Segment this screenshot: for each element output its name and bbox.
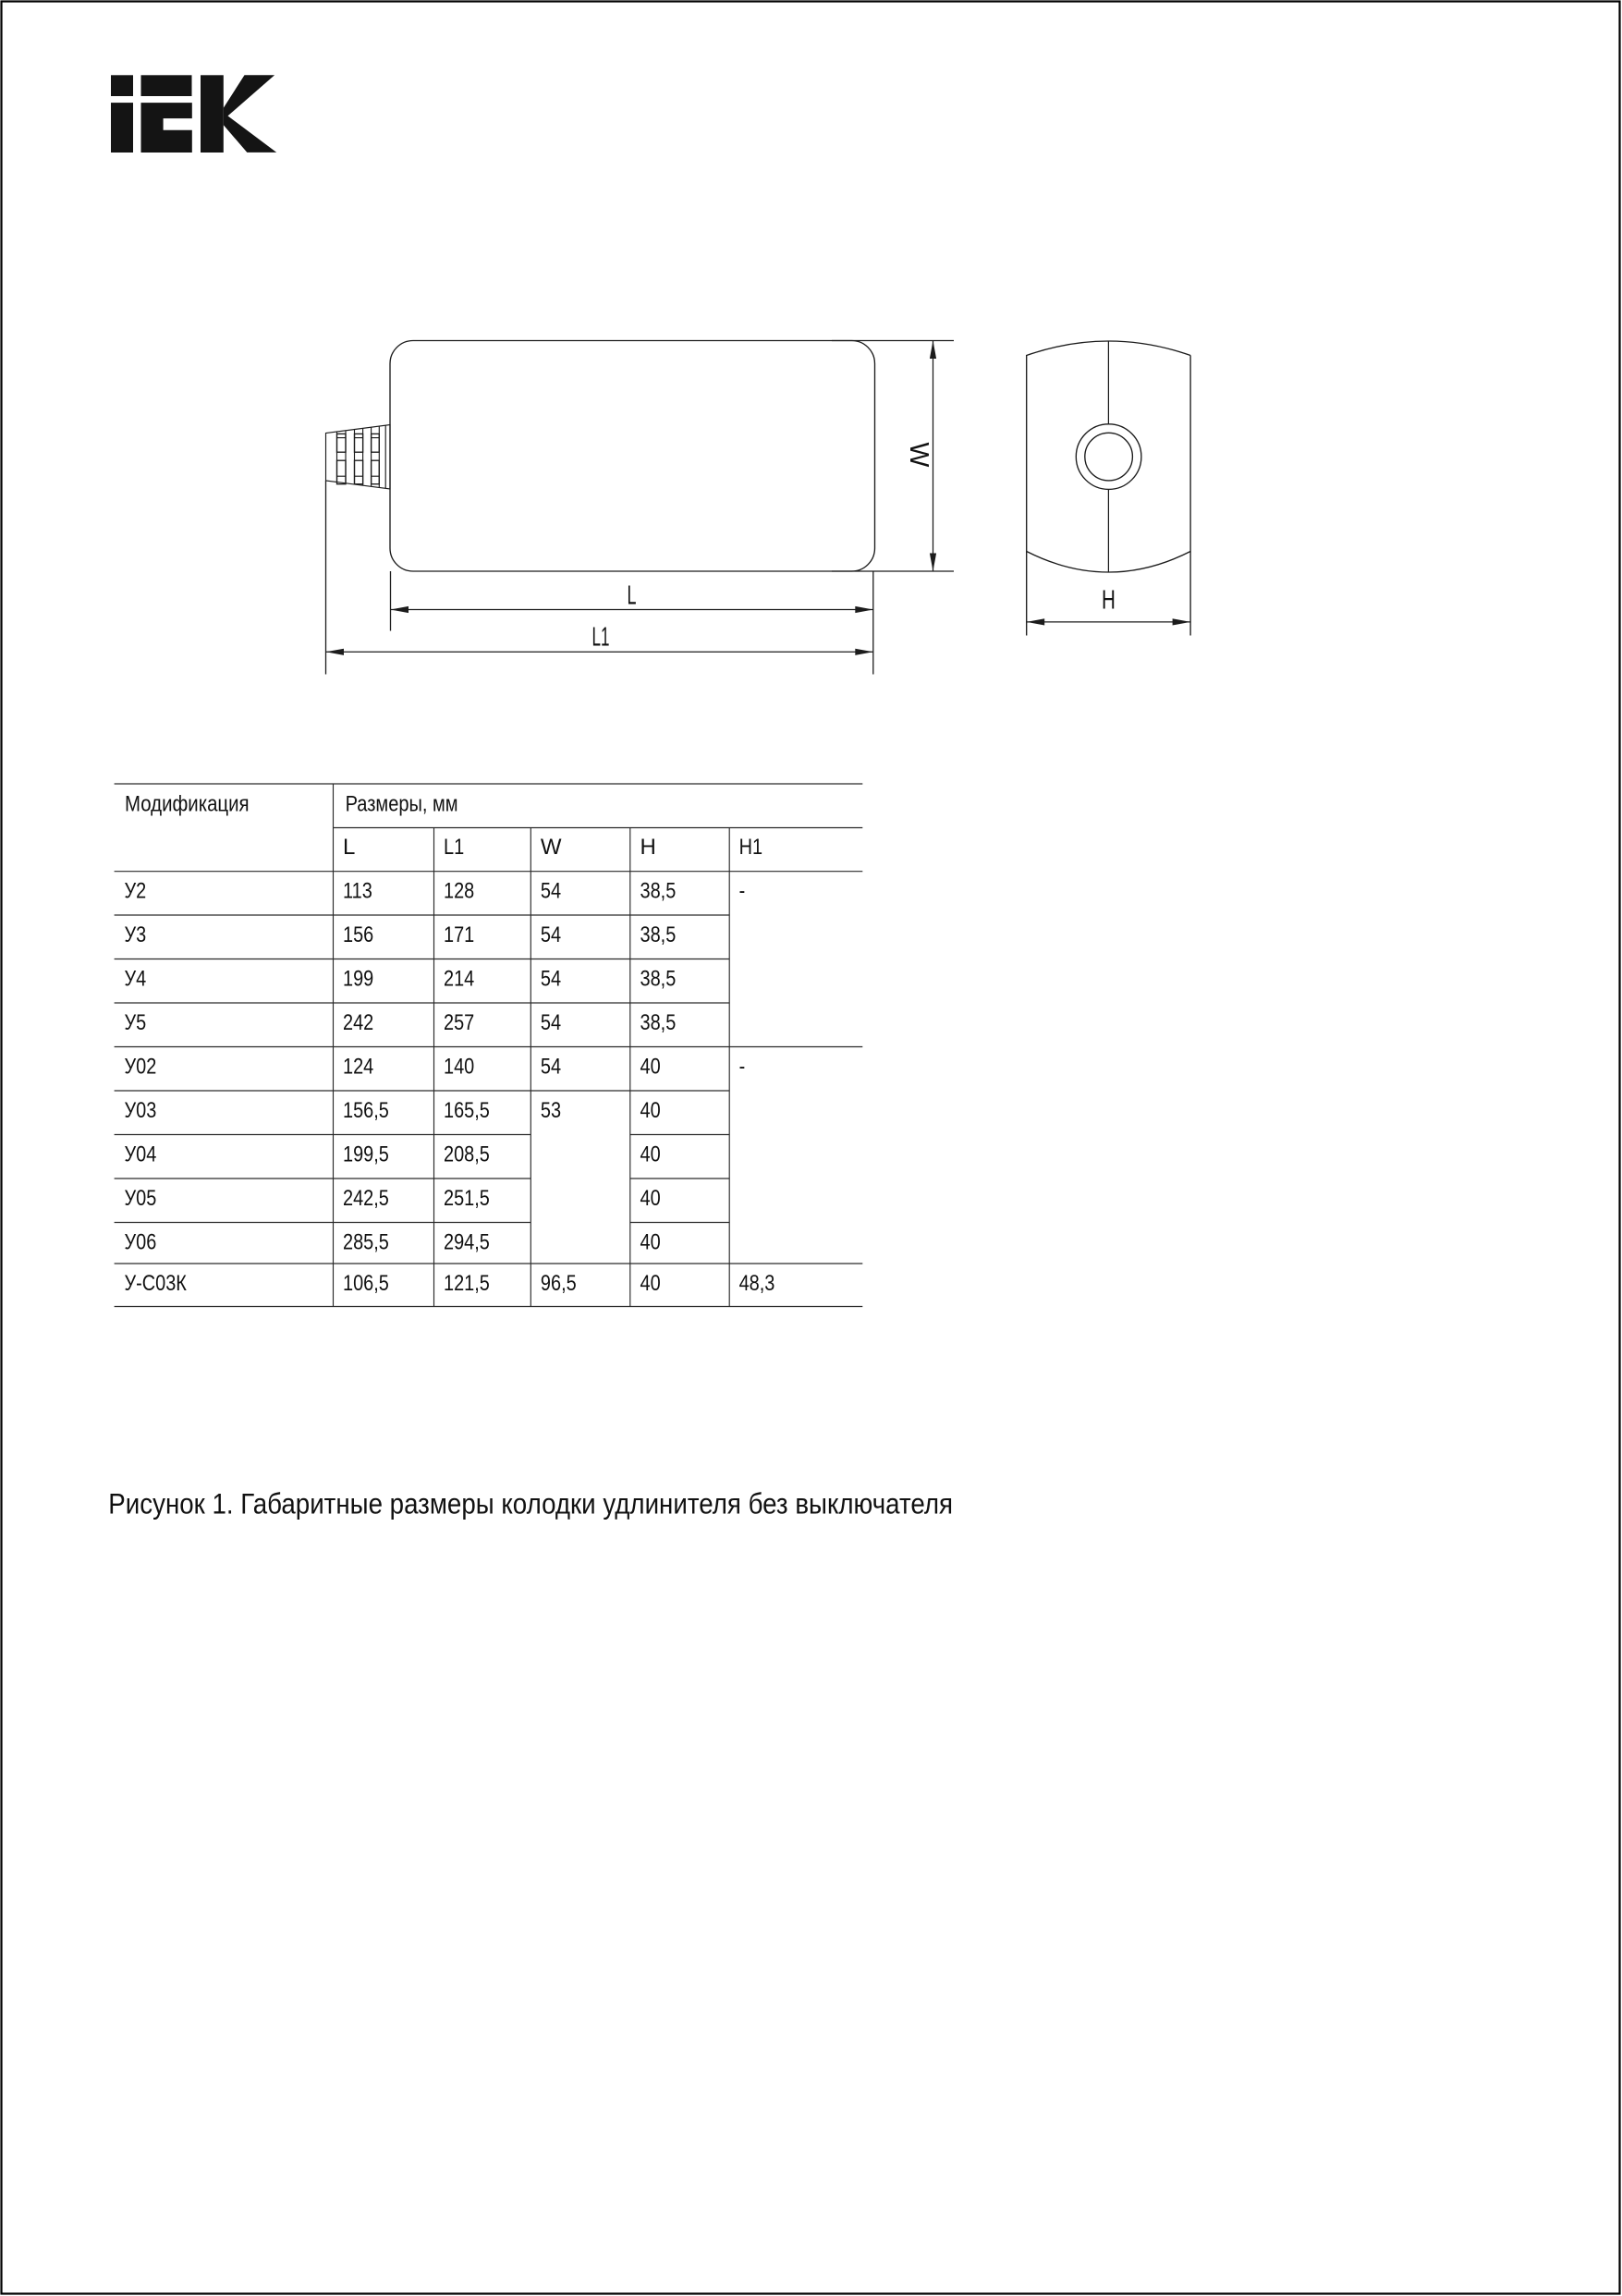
- svg-text:40: 40: [640, 1142, 661, 1167]
- svg-text:54: 54: [541, 922, 561, 947]
- svg-text:У03: У03: [125, 1098, 157, 1123]
- svg-text:54: 54: [541, 1055, 561, 1080]
- svg-text:38,5: 38,5: [640, 967, 677, 992]
- svg-text:251,5: 251,5: [444, 1186, 490, 1211]
- svg-text:54: 54: [541, 879, 561, 904]
- svg-text:121,5: 121,5: [444, 1271, 490, 1296]
- svg-text:54: 54: [541, 1010, 561, 1035]
- svg-text:H: H: [1102, 586, 1116, 616]
- svg-text:40: 40: [640, 1230, 661, 1255]
- svg-text:106,5: 106,5: [343, 1271, 389, 1296]
- svg-text:38,5: 38,5: [640, 1010, 677, 1035]
- svg-text:L1: L1: [592, 623, 610, 653]
- svg-text:242: 242: [343, 1010, 373, 1035]
- svg-text:40: 40: [640, 1186, 661, 1211]
- svg-text:285,5: 285,5: [343, 1230, 389, 1255]
- svg-text:208,5: 208,5: [444, 1142, 490, 1167]
- svg-text:Модификация: Модификация: [125, 792, 250, 817]
- svg-text:У5: У5: [125, 1010, 147, 1035]
- svg-text:199,5: 199,5: [343, 1142, 389, 1167]
- svg-text:257: 257: [444, 1010, 474, 1035]
- svg-text:Рисунок 1. Габаритные размеры: Рисунок 1. Габаритные размеры колодки уд…: [108, 1487, 953, 1520]
- svg-text:У2: У2: [125, 879, 147, 904]
- svg-text:113: 113: [343, 879, 372, 904]
- svg-text:140: 140: [444, 1055, 474, 1080]
- svg-text:L: L: [343, 835, 355, 860]
- svg-text:199: 199: [343, 967, 373, 992]
- svg-text:214: 214: [444, 967, 474, 992]
- svg-text:38,5: 38,5: [640, 922, 677, 947]
- svg-text:54: 54: [541, 967, 561, 992]
- svg-text:У-С03К: У-С03К: [125, 1271, 187, 1296]
- svg-text:128: 128: [444, 879, 474, 904]
- svg-text:-: -: [739, 879, 746, 904]
- svg-text:124: 124: [343, 1055, 373, 1080]
- svg-text:171: 171: [444, 922, 474, 947]
- svg-text:242,5: 242,5: [343, 1186, 389, 1211]
- svg-text:У3: У3: [125, 922, 147, 947]
- svg-text:38,5: 38,5: [640, 879, 677, 904]
- svg-text:96,5: 96,5: [541, 1271, 577, 1296]
- svg-text:40: 40: [640, 1098, 661, 1123]
- svg-text:H: H: [640, 835, 656, 860]
- svg-text:У04: У04: [125, 1142, 157, 1167]
- svg-text:165,5: 165,5: [444, 1098, 490, 1123]
- svg-text:W: W: [904, 443, 933, 468]
- svg-text:48,3: 48,3: [739, 1271, 775, 1296]
- svg-text:L: L: [628, 581, 637, 611]
- svg-text:156: 156: [343, 922, 373, 947]
- svg-text:294,5: 294,5: [444, 1230, 490, 1255]
- svg-text:У4: У4: [125, 967, 147, 992]
- svg-text:40: 40: [640, 1055, 661, 1080]
- svg-text:-: -: [739, 1055, 746, 1080]
- svg-text:Размеры, мм: Размеры, мм: [346, 792, 458, 817]
- svg-text:H1: H1: [739, 835, 763, 860]
- svg-text:40: 40: [640, 1271, 661, 1296]
- svg-text:У06: У06: [125, 1230, 157, 1255]
- svg-text:L1: L1: [444, 835, 464, 860]
- svg-text:У05: У05: [125, 1186, 157, 1211]
- svg-text:W: W: [541, 835, 562, 860]
- svg-text:156,5: 156,5: [343, 1098, 389, 1123]
- svg-text:53: 53: [541, 1098, 561, 1123]
- svg-text:У02: У02: [125, 1055, 157, 1080]
